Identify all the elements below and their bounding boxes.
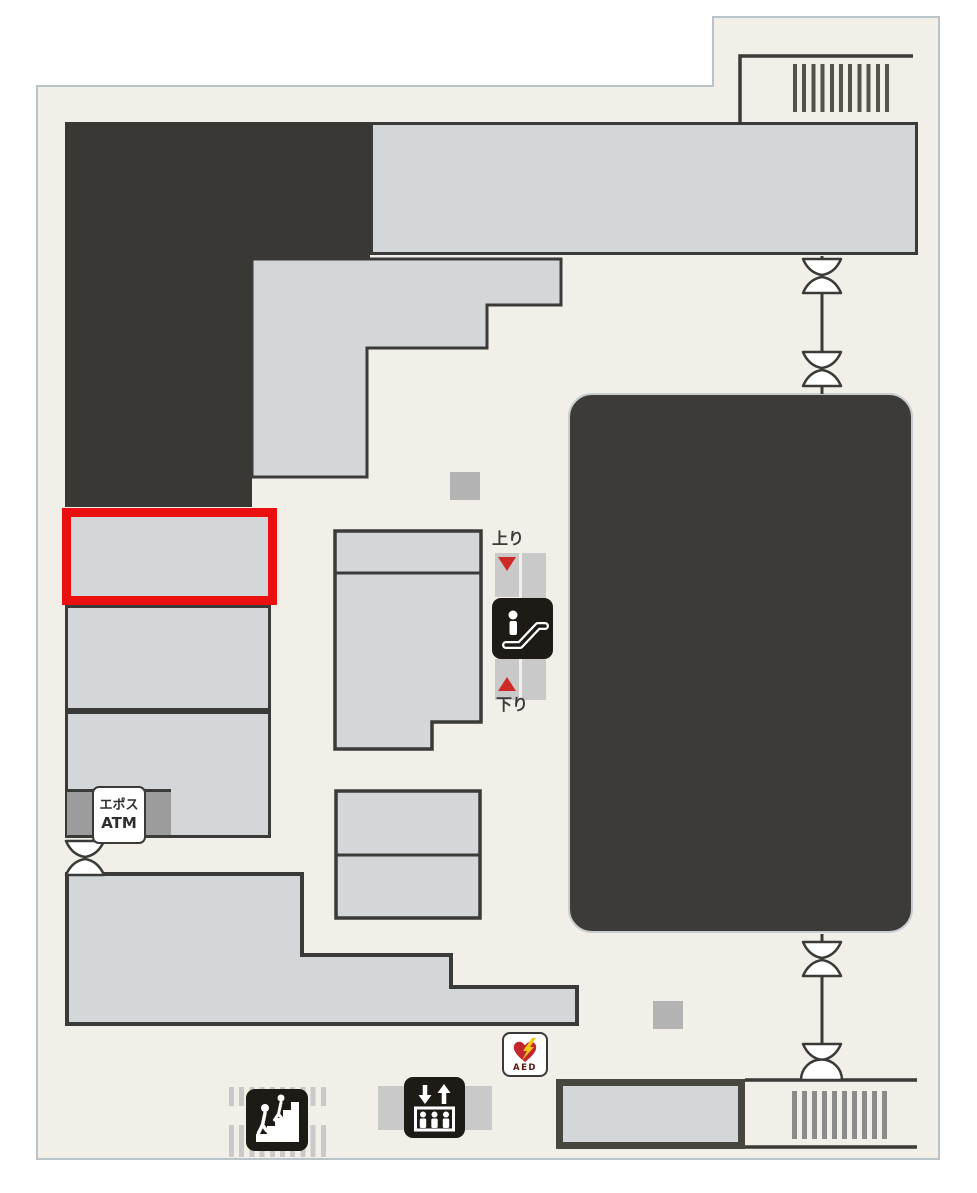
dark-block-top-left-lower — [65, 258, 252, 507]
aed-heart — [514, 1042, 536, 1062]
shop-block-top — [370, 122, 918, 255]
atm-label: ATM — [101, 815, 137, 832]
floor-map-page: 上り 下り — [0, 0, 977, 1193]
escalator-icon — [492, 598, 553, 659]
stairs-person-1 — [259, 1104, 270, 1133]
escalator-down-label: 下り — [496, 697, 528, 713]
stairs-hatch-bottom-right — [792, 1091, 892, 1139]
elevator-icon — [404, 1077, 465, 1138]
escalator-glyph — [492, 598, 553, 659]
pillar-square-lower — [653, 1001, 683, 1029]
escalator-up-label: 上り — [492, 531, 524, 547]
aed-icon: AED — [502, 1032, 548, 1077]
epos-atm-label-box: エポス ATM — [92, 786, 146, 844]
aed-heart-glyph — [508, 1036, 542, 1064]
elevator-passengers — [420, 1112, 449, 1129]
escalator-person-body — [510, 621, 518, 635]
aed-label: AED — [513, 1064, 537, 1073]
highlighted-shop-block — [62, 508, 277, 605]
dark-block-top-left-upper — [65, 122, 370, 258]
stairs-hatch-top-right — [793, 64, 894, 112]
elevator-glyph — [404, 1077, 465, 1138]
shop-block-left-middle — [65, 605, 271, 711]
escalator-up-arrow-icon — [498, 677, 516, 691]
stairs-icon — [246, 1089, 308, 1151]
epos-label: エポス — [99, 798, 138, 814]
shop-block-bottom-right-outlined — [556, 1079, 745, 1149]
elevator-down-arrow-head — [419, 1095, 432, 1104]
escalator-down-arrow-icon — [498, 557, 516, 571]
dark-rounded-block-right — [568, 393, 913, 933]
escalator-person-head — [509, 611, 518, 620]
stairs-glyph — [246, 1089, 308, 1151]
elevator-up-arrow-head — [438, 1084, 451, 1093]
pillar-square-upper — [450, 472, 480, 500]
